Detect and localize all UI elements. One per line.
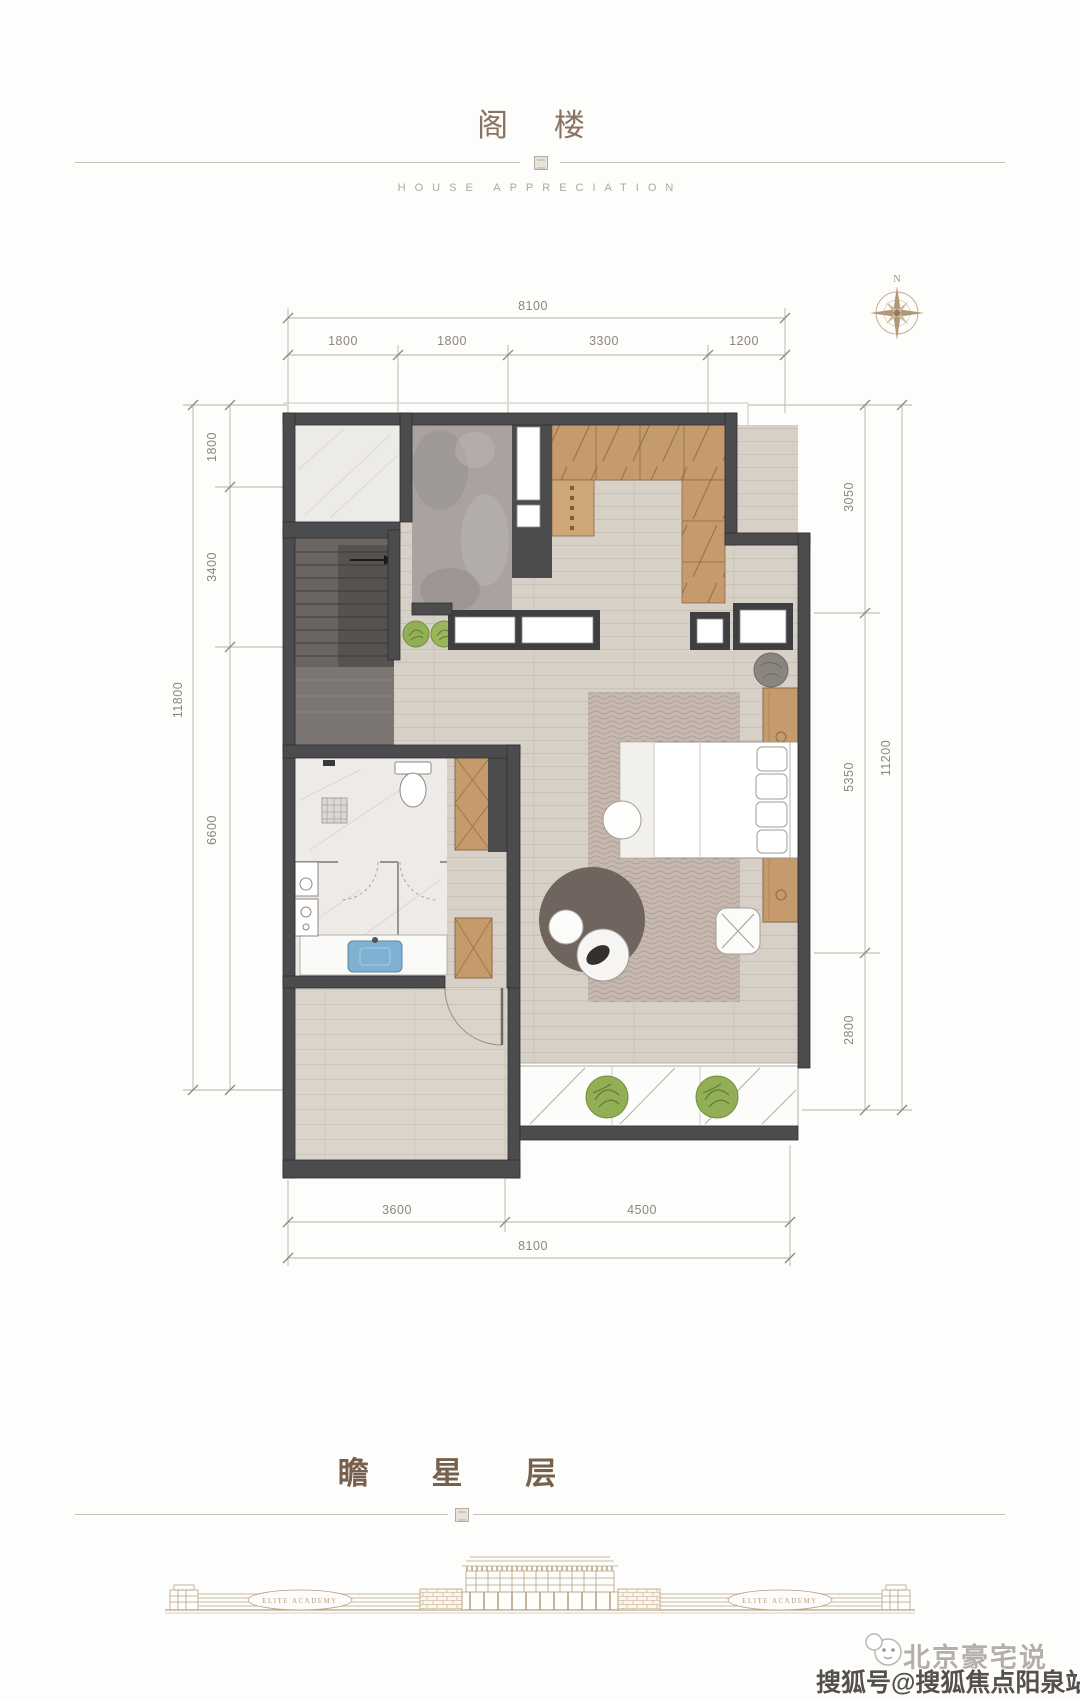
elevation-central-building — [462, 1557, 618, 1610]
bed — [620, 742, 798, 858]
plant-pot-icon — [754, 653, 788, 687]
footer-divider-ornament-icon — [455, 1508, 469, 1522]
bedside-table-icon — [603, 801, 641, 839]
dim-bottom-overall: 8100 — [518, 1239, 548, 1253]
dim-left-seg-2: 3400 — [205, 552, 219, 582]
bathroom — [295, 758, 447, 976]
multi-purpose-room — [295, 988, 508, 1160]
gray-marble-room — [412, 425, 512, 612]
balcony — [520, 1063, 798, 1126]
balcony-plant-icon — [696, 1076, 738, 1118]
elevation-left-tower — [170, 1585, 198, 1610]
pouf-icon — [716, 908, 760, 954]
dim-right-seg-1: 3050 — [842, 482, 856, 512]
dim-left-seg-3: 6600 — [205, 815, 219, 845]
dim-bottom-seg-1: 3600 — [382, 1203, 412, 1217]
shower-head-icon — [323, 760, 335, 766]
elevation-right-label: ELITE ACADEMY — [742, 1597, 818, 1605]
sink-icon — [348, 941, 402, 972]
dim-right-seg-3: 2800 — [842, 1015, 856, 1045]
dim-right-seg-2: 5350 — [842, 762, 856, 792]
balcony-plant-icon — [586, 1076, 628, 1118]
elevation-left-label: ELITE ACADEMY — [262, 1597, 338, 1605]
storage-room — [295, 425, 400, 522]
footer-divider-right — [473, 1514, 1005, 1515]
footer-divider-left — [75, 1514, 448, 1515]
watermark-logo-icon — [866, 1634, 901, 1665]
elevation-drawing: ELITE ACADEMY ELITE ACADEMY — [165, 1557, 915, 1613]
dim-top-seg-4: 1200 — [729, 334, 759, 348]
dim-top-overall: 8100 — [518, 299, 548, 313]
dim-left-overall: 11800 — [171, 682, 185, 718]
stairs — [295, 538, 394, 745]
dim-top-seg-3: 3300 — [589, 334, 619, 348]
dim-left-seg-1: 1800 — [205, 432, 219, 462]
dim-bottom-seg-2: 4500 — [627, 1203, 657, 1217]
elevation-right-tower — [882, 1585, 910, 1610]
dim-right-overall: 11200 — [879, 740, 893, 776]
page: 阁 楼 HOUSE APPRECIATION — [0, 0, 1080, 1701]
wall-fixtures — [295, 862, 318, 936]
compass-north-label: N — [893, 274, 900, 285]
compass-icon: N — [870, 274, 924, 340]
dim-top-seg-1: 1800 — [328, 334, 358, 348]
vanity-counter — [300, 935, 447, 975]
watermark-account: 搜狐号@搜狐焦点阳泉站 — [816, 1663, 1080, 1699]
dim-top-seg-2: 1800 — [437, 334, 467, 348]
shower-drain-icon — [322, 798, 347, 823]
side-table-icon — [549, 910, 583, 944]
section-title-bottom: 瞻 星 层 — [330, 1448, 590, 1493]
floor-plan: N — [0, 0, 1080, 1701]
